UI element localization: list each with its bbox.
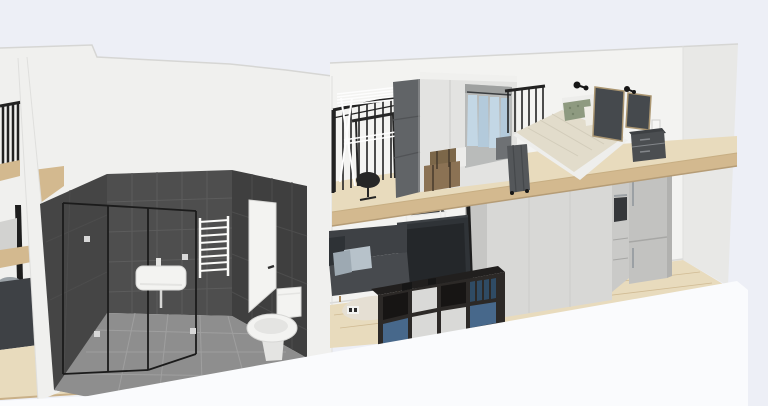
office-chair — [356, 172, 380, 188]
planner-3d-viewport[interactable] — [0, 0, 768, 406]
fridge-freezer[interactable] — [629, 169, 672, 284]
wall-art-frame-2[interactable] — [626, 93, 651, 130]
bathroom — [40, 170, 307, 397]
oven-column[interactable] — [612, 180, 629, 292]
suitcase[interactable] — [507, 144, 530, 195]
nightstand[interactable] — [629, 128, 666, 162]
wall-art-frame-1[interactable] — [593, 87, 624, 141]
oven-window — [614, 197, 627, 222]
wall-outlet[interactable] — [347, 306, 359, 314]
throw-pillow-mid — [333, 250, 352, 276]
wardrobe-open-door[interactable] — [393, 79, 420, 198]
